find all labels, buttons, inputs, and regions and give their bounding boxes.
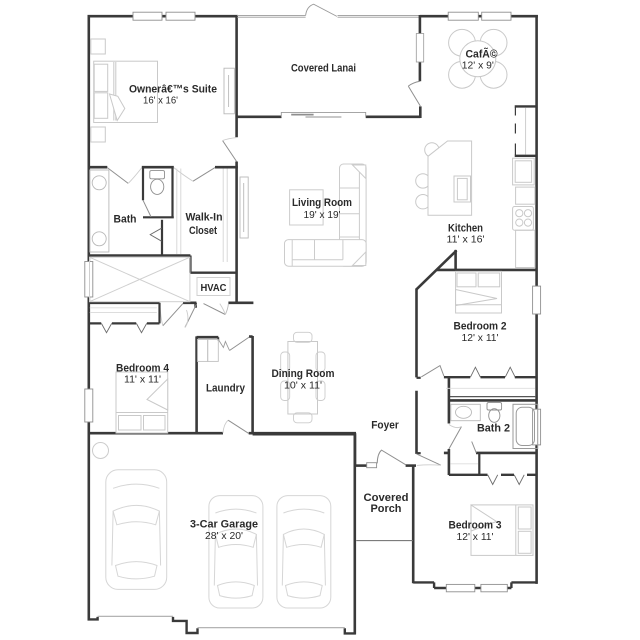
svg-text:Bedroom 2: Bedroom 2 [454, 320, 507, 332]
svg-text:Bedroom 3: Bedroom 3 [449, 519, 502, 531]
svg-text:3-Car Garage: 3-Car Garage [190, 519, 258, 531]
svg-text:Bath: Bath [114, 213, 137, 225]
svg-text:Walk-In: Walk-In [186, 212, 223, 224]
svg-text:11' x 11': 11' x 11' [124, 375, 161, 386]
svg-text:Dining Room: Dining Room [272, 368, 335, 380]
svg-text:Closet: Closet [189, 225, 217, 237]
svg-text:Bath 2: Bath 2 [477, 422, 510, 434]
svg-text:12' x 11': 12' x 11' [457, 532, 494, 543]
svg-text:Kitchen: Kitchen [448, 223, 483, 235]
svg-text:Foyer: Foyer [371, 419, 399, 431]
svg-text:16' x 16': 16' x 16' [143, 95, 178, 106]
svg-text:Ownerâ€™s Suite: Ownerâ€™s Suite [129, 84, 217, 96]
svg-text:12' x 11': 12' x 11' [462, 333, 499, 344]
svg-text:11' x 16': 11' x 16' [447, 235, 485, 246]
svg-text:Bedroom 4: Bedroom 4 [116, 362, 170, 374]
svg-text:HVAC: HVAC [201, 282, 227, 294]
svg-text:19' x 19': 19' x 19' [304, 210, 341, 221]
svg-text:Living Room: Living Room [292, 197, 352, 209]
svg-text:Laundry: Laundry [206, 382, 246, 394]
svg-text:CafÃ©: CafÃ© [466, 48, 499, 61]
svg-text:Porch: Porch [371, 503, 402, 515]
svg-text:Covered Lanai: Covered Lanai [291, 63, 356, 75]
svg-text:28' x 20': 28' x 20' [205, 531, 243, 542]
svg-text:10' x 11': 10' x 11' [284, 380, 322, 391]
svg-text:12' x 9': 12' x 9' [462, 61, 494, 72]
